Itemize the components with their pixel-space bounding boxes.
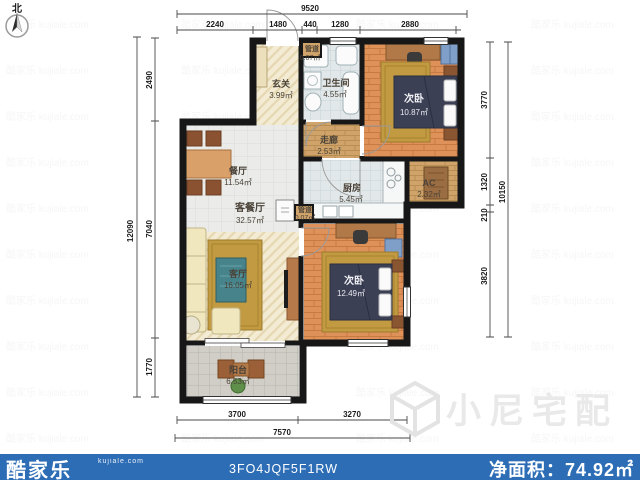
net-area-label: 净面积： [489, 460, 565, 480]
dim-left-total: 12090 [126, 219, 135, 242]
dining-label: 餐厅 [228, 165, 247, 176]
balcony-label: 阳台 [229, 364, 247, 375]
pillow [379, 268, 391, 290]
bedroom-bottom-label: 次卧 [344, 274, 364, 287]
kitchen-sink [323, 206, 337, 217]
sliding-door [241, 343, 285, 348]
bedroom-top-label: 次卧 [404, 92, 424, 105]
bathroom-label: 卫生间 [322, 77, 349, 88]
duct-mid-area: 0.07㎡ [295, 214, 316, 222]
pillow [379, 294, 391, 316]
dim-bottom-total: 7570 [273, 428, 291, 437]
dim-top-seg-3: 1280 [331, 20, 349, 29]
ac-label: AC [423, 178, 436, 188]
kitchen-area: 5.45㎡ [339, 195, 363, 204]
tv-cabinet [287, 258, 299, 320]
kujiale-site-label: kujiale.com [98, 458, 144, 465]
balcony-area: 6.53㎡ [226, 377, 250, 386]
dim-right-seg-3: 3820 [480, 267, 489, 285]
dim-bottom-seg-0: 3700 [228, 410, 246, 419]
pillow [444, 105, 456, 126]
duct-top-area: 0.07㎡ [300, 54, 321, 62]
dining-area: 11.54㎡ [224, 178, 251, 187]
footer-bar: 酷家乐 kujiale.com 3FO4JQF5F1RW 净面积：74.92㎡ [0, 454, 640, 480]
bedroom-top-area: 10.87㎡ [400, 108, 428, 117]
dim-top-seg-1: 1480 [269, 20, 287, 29]
net-area: 净面积：74.92㎡ [489, 456, 634, 480]
armchair [212, 308, 240, 334]
coffee-table [216, 258, 246, 302]
plan-code: 3FO4JQF5F1RW [229, 462, 338, 476]
living-dining-label: 客餐厅 [234, 201, 265, 214]
floorplan-canvas: 酷家乐 kujiale.com [0, 0, 640, 480]
shower-tray [336, 46, 357, 65]
corridor-label: 走廊 [319, 134, 338, 145]
dim-left-seg-0: 2490 [145, 71, 154, 89]
toilet [305, 93, 321, 111]
dim-bottom-seg-1: 3270 [343, 410, 361, 419]
pillow [444, 80, 456, 101]
entry-area: 3.99㎡ [269, 91, 293, 100]
floorplan-svg: 酷家乐 kujiale.com [0, 0, 640, 480]
bathroom-area: 4.55㎡ [323, 90, 347, 99]
duct-top-label: 管道 [305, 44, 319, 53]
dim-right-seg-1: 1320 [480, 173, 489, 191]
duct-mid-label: 管道 [298, 205, 312, 214]
living-dining-area: 32.57㎡ [236, 216, 264, 225]
entry-opening [266, 36, 299, 46]
bedroom-top-furniture [381, 43, 459, 142]
dim-right-seg-0: 3770 [480, 91, 489, 109]
shoe-cabinet [256, 47, 267, 87]
corridor-area: 2.53㎡ [317, 147, 341, 156]
dim-top-seg-4: 2880 [401, 20, 419, 29]
kujiale-logo: 酷家乐 [6, 454, 72, 480]
nightstand [444, 128, 458, 140]
net-area-value: 74.92㎡ [565, 460, 634, 480]
dim-right-total: 10150 [498, 180, 507, 203]
ac-area: 2.32㎡ [417, 190, 441, 199]
entry-label: 玄关 [272, 78, 290, 89]
living-area: 16.05㎡ [224, 281, 252, 290]
nightstand [392, 316, 404, 328]
living-label: 客厅 [228, 268, 247, 279]
kitchen-label: 厨房 [343, 182, 361, 193]
dim-right-seg-2: 210 [480, 208, 489, 222]
dim-left-seg-2: 1770 [145, 358, 154, 376]
dim-left-seg-1: 7040 [145, 220, 154, 238]
watermark-text: 小尼宅配 [446, 391, 618, 431]
sliding-door [205, 339, 249, 344]
bedroom-bottom-area: 12.49㎡ [337, 289, 365, 298]
desk-chair [353, 230, 368, 244]
dim-top-seg-2: 440 [303, 20, 317, 29]
nightstand [392, 260, 404, 272]
dim-top-total: 9520 [301, 4, 319, 13]
fridge [276, 200, 294, 221]
dim-top-seg-0: 2240 [206, 20, 224, 29]
washing-machine [304, 72, 321, 89]
tv [284, 270, 288, 308]
dining-table [185, 150, 231, 178]
